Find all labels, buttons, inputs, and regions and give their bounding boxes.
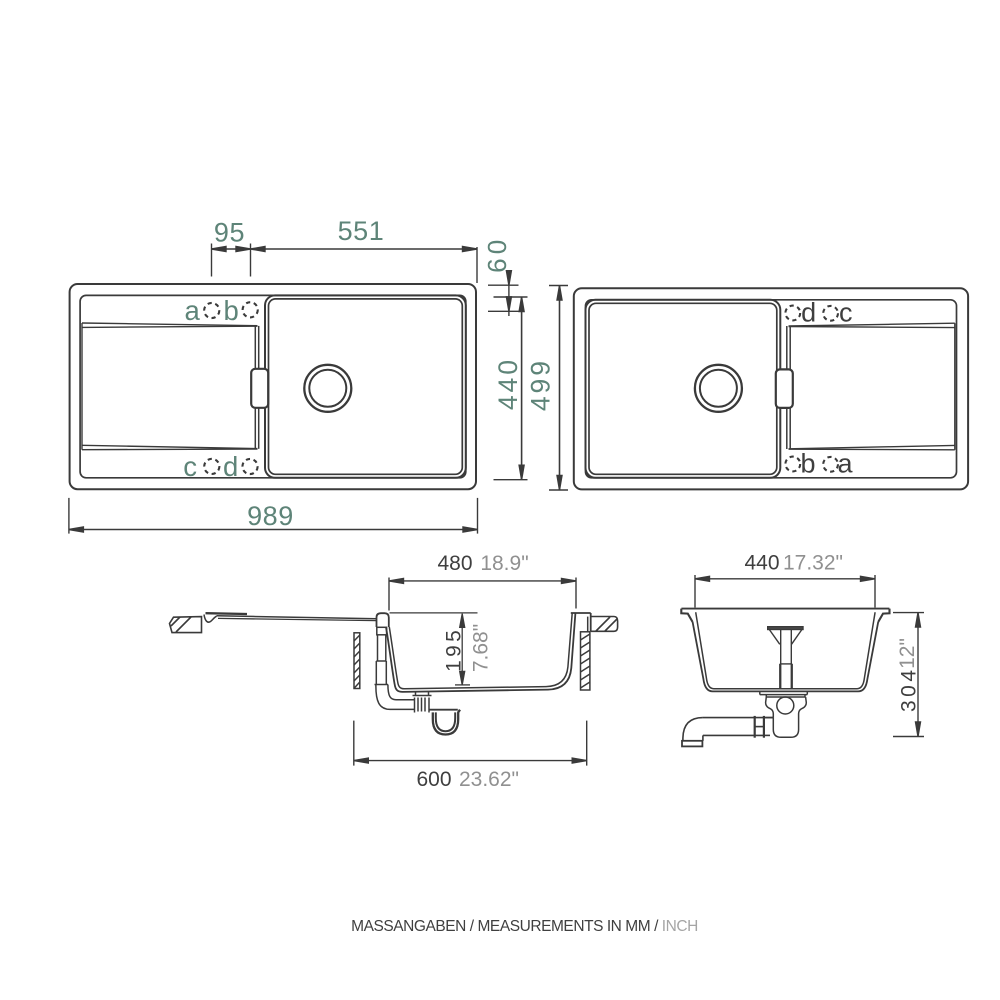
- svg-text:c: c: [183, 451, 197, 482]
- svg-text:18.9": 18.9": [480, 552, 528, 575]
- svg-text:d: d: [223, 451, 239, 482]
- svg-text:600: 600: [416, 768, 451, 791]
- svg-text:0: 0: [493, 359, 523, 374]
- svg-text:480: 480: [437, 552, 472, 575]
- svg-text:b: b: [224, 295, 240, 326]
- svg-text:5: 5: [443, 630, 466, 642]
- svg-text:12": 12": [896, 638, 919, 669]
- svg-text:0: 0: [898, 685, 921, 697]
- svg-text:1: 1: [443, 660, 466, 672]
- svg-text:989: 989: [247, 501, 294, 531]
- svg-text:d: d: [801, 298, 816, 328]
- svg-text:9: 9: [526, 378, 556, 393]
- svg-text:a: a: [185, 295, 201, 326]
- svg-text:MASSANGABEN / MEASUREMENTS IN: MASSANGABEN / MEASUREMENTS IN MM / INCH: [351, 918, 698, 935]
- svg-text:551: 551: [338, 216, 385, 246]
- svg-text:95: 95: [214, 218, 245, 248]
- svg-text:3: 3: [898, 700, 921, 712]
- svg-text:7.68": 7.68": [470, 624, 493, 672]
- svg-text:4: 4: [493, 395, 523, 410]
- svg-text:17.32": 17.32": [783, 552, 843, 575]
- svg-text:4: 4: [898, 670, 921, 682]
- svg-text:440: 440: [744, 552, 779, 575]
- svg-text:9: 9: [526, 360, 556, 375]
- svg-text:b: b: [800, 449, 815, 479]
- svg-text:c: c: [839, 298, 853, 328]
- svg-text:a: a: [837, 449, 853, 479]
- svg-text:0: 0: [482, 239, 512, 254]
- svg-text:4: 4: [493, 377, 523, 392]
- svg-text:9: 9: [443, 645, 466, 657]
- svg-text:4: 4: [526, 396, 556, 411]
- svg-text:23.62": 23.62": [459, 768, 519, 791]
